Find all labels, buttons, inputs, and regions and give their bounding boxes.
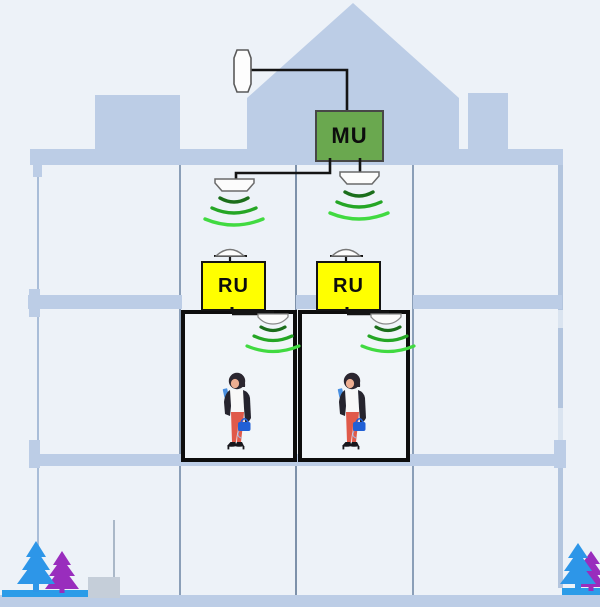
ceiling-antenna-icon bbox=[340, 172, 379, 184]
right-wall bbox=[558, 165, 563, 588]
ceiling-antenna-icon bbox=[215, 179, 254, 191]
roof-antenna-icon bbox=[234, 50, 251, 92]
wall-cap bbox=[29, 289, 40, 317]
entrance-step bbox=[88, 577, 120, 598]
floor-slab-mid-left bbox=[28, 295, 182, 309]
entrance-edge-line bbox=[113, 520, 115, 577]
remote-unit-2-box: RU bbox=[316, 261, 381, 311]
dome-antenna-icon bbox=[216, 250, 244, 257]
wall-cap bbox=[29, 440, 40, 468]
left-chimney bbox=[95, 95, 180, 152]
wall-cap bbox=[33, 165, 42, 177]
signal-waves-icon bbox=[330, 192, 388, 219]
floor-slab-mid-center bbox=[296, 295, 317, 309]
tree-icon bbox=[560, 543, 600, 595]
dome-antenna-icon bbox=[332, 250, 360, 257]
signal-waves-icon bbox=[205, 198, 263, 225]
cable-roof-antenna-to-mu bbox=[250, 70, 347, 110]
room-2 bbox=[298, 310, 410, 462]
wall-cap bbox=[554, 440, 566, 468]
left-wall-line bbox=[37, 165, 39, 595]
floor-slab-mid-right bbox=[413, 295, 562, 309]
master-unit-label: MU bbox=[331, 123, 367, 149]
floor-slab-top bbox=[30, 149, 563, 165]
room-1 bbox=[181, 310, 297, 462]
building-diagram: MU RU RU bbox=[0, 0, 600, 607]
remote-unit-1-label: RU bbox=[218, 275, 249, 298]
column-line-3 bbox=[412, 165, 414, 595]
remote-unit-2-label: RU bbox=[333, 275, 364, 298]
right-wall-opening-1 bbox=[558, 310, 563, 328]
master-unit-box: MU bbox=[315, 110, 384, 162]
remote-unit-1-box: RU bbox=[201, 261, 266, 311]
right-chimney bbox=[468, 93, 508, 152]
tree-icon bbox=[2, 541, 88, 597]
